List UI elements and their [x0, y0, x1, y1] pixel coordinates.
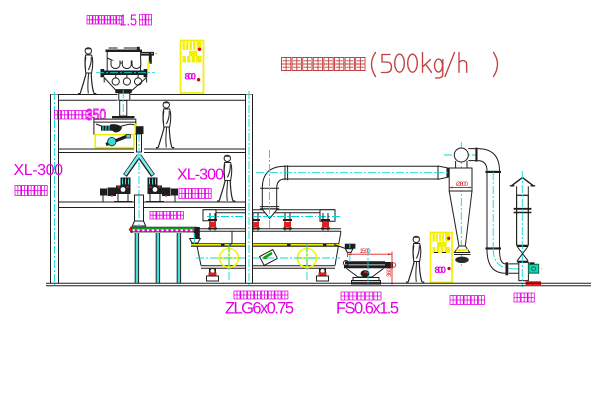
svg-text:Ø800: Ø800 [456, 181, 468, 188]
svg-text:FS0.6x1.5: FS0.6x1.5 [336, 300, 399, 318]
svg-text:ZLG6x0.75: ZLG6x0.75 [225, 300, 294, 318]
svg-text:1.5: 1.5 [120, 13, 138, 30]
svg-text:360: 360 [387, 267, 393, 277]
svg-text:800: 800 [185, 72, 197, 83]
svg-text:XL-300: XL-300 [177, 167, 224, 184]
svg-text:800: 800 [435, 265, 447, 276]
svg-text:XL-300: XL-300 [14, 162, 64, 179]
